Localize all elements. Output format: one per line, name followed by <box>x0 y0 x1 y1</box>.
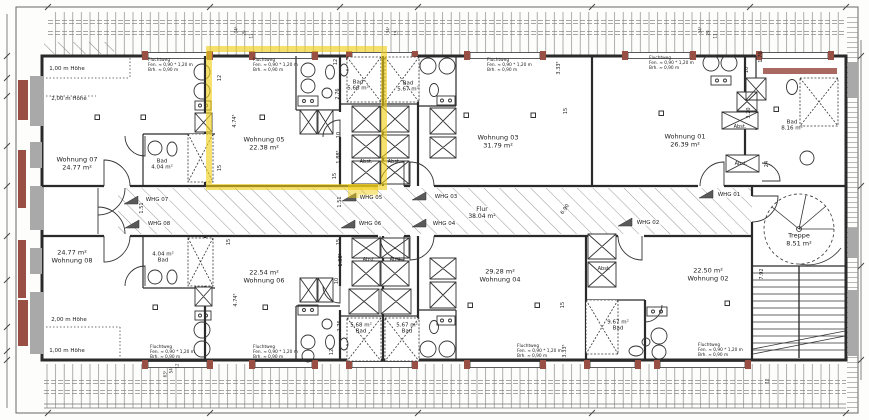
dim-label: 1.51 <box>140 202 146 213</box>
room-label-bad-w08: 4.04 m²Bad <box>152 252 174 265</box>
escape-route-note: FluchtwegFen. ≈ 0,90 * 1,20 mBrh. ≈ 0,90… <box>487 59 532 73</box>
escape-route-note: FluchtwegFen. ≈ 0,90 * 1,20 mBrh. ≈ 0,90… <box>253 346 298 360</box>
floor-plan: Wohnung 0724.77 m² Wohnung 0522.38 m² Wo… <box>0 0 869 420</box>
dim-label: 15 <box>218 165 224 171</box>
room-label-bad-w02: 9.67 m²Bad <box>607 320 629 333</box>
escape-route-note: FluchtwegFen. ≈ 0,90 * 1,20 mBrh. ≈ 0,90… <box>253 59 298 73</box>
dim-label: 10 <box>745 67 751 73</box>
dim-label: 3.33⁵ <box>557 61 563 74</box>
dim-label: 12 <box>334 59 340 65</box>
storage-label: Abst. <box>363 258 376 264</box>
roof-dim-label: 29 <box>707 30 712 35</box>
roof-dim-label: 63⁵ <box>164 371 169 378</box>
entry-label-whg-03: WHG 03 <box>434 194 459 200</box>
room-label-treppe: Treppe8.51 m² <box>786 232 811 247</box>
storage-label: Abst. <box>734 125 747 131</box>
dim-label: 1.88⁵ <box>337 150 343 163</box>
entry-label-whg-06: WHG 06 <box>358 221 383 227</box>
roof-dim-label: 29 <box>243 30 248 35</box>
roof-dim-label: 12 <box>766 378 771 383</box>
dim-label: 4.74⁵ <box>233 114 239 127</box>
entry-label-whg-02: WHG 02 <box>636 220 661 226</box>
escape-route-note: FluchtwegFen. ≈ 0,90 * 1,20 mBrh. ≈ 0,90… <box>150 346 195 360</box>
dim-label: 2.76 <box>338 320 344 331</box>
roof-dim-label: 34⁵ <box>235 27 240 34</box>
roof-dim-label: 34⁵ <box>387 27 392 34</box>
room-label-wohnung-03: Wohnung 0331.79 m² <box>478 134 519 149</box>
dim-label: 15 <box>561 302 567 308</box>
roof-dim-label: 34⁵ <box>699 27 704 34</box>
room-label-bad-w07: Bad4.04 m² <box>151 159 173 172</box>
room-label-wohnung-05: Wohnung 0522.38 m² <box>244 136 285 151</box>
room-label-bad-bottom-right: 5.67 m²Bad <box>396 323 418 336</box>
storage-label: Abst. <box>598 267 611 273</box>
room-label-bad-top-left: Bad5.66 m² <box>347 80 369 93</box>
roof-dim-label: 11 <box>714 33 719 38</box>
entry-label-whg-07: WHG 07 <box>145 197 170 203</box>
roof-dim-label: 11 <box>250 33 255 38</box>
room-label-wohnung-07: Wohnung 0724.77 m² <box>57 156 98 171</box>
room-label-bad-bottom-left: 5.68 m²Bad <box>350 323 372 336</box>
room-label-wohnung-08: 24.77 m²Wohnung 08 <box>52 249 93 264</box>
roof-dim-label: 15 <box>395 30 400 35</box>
escape-route-note: FluchtwegFen. ≈ 0,90 * 1,20 mBrh. ≈ 0,90… <box>148 59 193 73</box>
dim-label: 12 <box>218 75 224 81</box>
dim-label: 15 <box>564 108 570 114</box>
escape-route-note: FluchtwegFen. ≈ 0,90 * 1,20 mBrh. ≈ 0,90… <box>649 57 694 71</box>
dim-label: 1.51 <box>338 196 344 207</box>
roof-hatch-top <box>44 12 844 56</box>
dim-label: 10 <box>335 278 341 284</box>
room-label-wohnung-01: Wohnung 0126.39 m² <box>665 133 706 148</box>
dim-label: 1.76 <box>759 51 765 62</box>
dim-label: 4.74⁵ <box>234 293 240 306</box>
room-label-flur: Flur38.04 m² <box>468 206 495 220</box>
escape-route-note: FluchtwegFen. ≈ 0,90 * 1,20 mBrh. ≈ 0,90… <box>517 345 562 359</box>
dim-label: 15 <box>227 239 233 245</box>
dim-label: 2.76 <box>336 88 342 99</box>
height-note: 2,00 m Höhe <box>51 317 86 323</box>
dim-label: 15 <box>333 173 339 179</box>
height-note: 1,00 m Höhe <box>49 348 84 354</box>
escape-route-note: FluchtwegFen. ≈ 0,90 * 1,20 mBrh. ≈ 0,90… <box>698 344 743 358</box>
room-label-wohnung-06: 22.54 m²Wohnung 06 <box>244 269 285 284</box>
dim-label: 24 <box>765 161 771 167</box>
entry-label-whg-01: WHG 01 <box>717 192 742 198</box>
room-label-wohnung-02: 22.50 m²Wohnung 02 <box>688 267 729 282</box>
storage-label: Abst. <box>360 160 373 166</box>
dim-label: 7.92 <box>760 268 766 279</box>
storage-label: Abst. <box>388 160 401 166</box>
roof-dim-label: 54⁵ <box>170 367 175 374</box>
dim-label: 15 <box>337 239 343 245</box>
dim-label: 3.20 <box>747 107 753 118</box>
dim-label: 1.88⁵ <box>339 253 345 266</box>
dim-label: 12 <box>330 349 336 355</box>
roof-dim-label: 12 <box>176 363 181 368</box>
entry-label-whg-04: WHG 04 <box>432 221 457 227</box>
storage-label: Abst. <box>735 162 748 168</box>
entry-label-whg-05: WHG 05 <box>359 195 384 201</box>
room-label-bad-top-right: Bad5.67 m² <box>397 81 419 94</box>
dim-label: 10 <box>337 132 343 138</box>
entry-label-whg-08: WHG 08 <box>147 221 172 227</box>
room-label-bad-w01: Bad8.16 m² <box>781 120 803 133</box>
storage-label: Abst. <box>390 258 403 264</box>
height-note: 1,00 m Höhe <box>49 66 84 72</box>
height-note: 2,00 m Höhe <box>51 96 86 102</box>
dim-label: 3.33⁵ <box>563 344 569 357</box>
room-label-wohnung-04: 29.28 m²Wohnung 04 <box>480 268 521 283</box>
